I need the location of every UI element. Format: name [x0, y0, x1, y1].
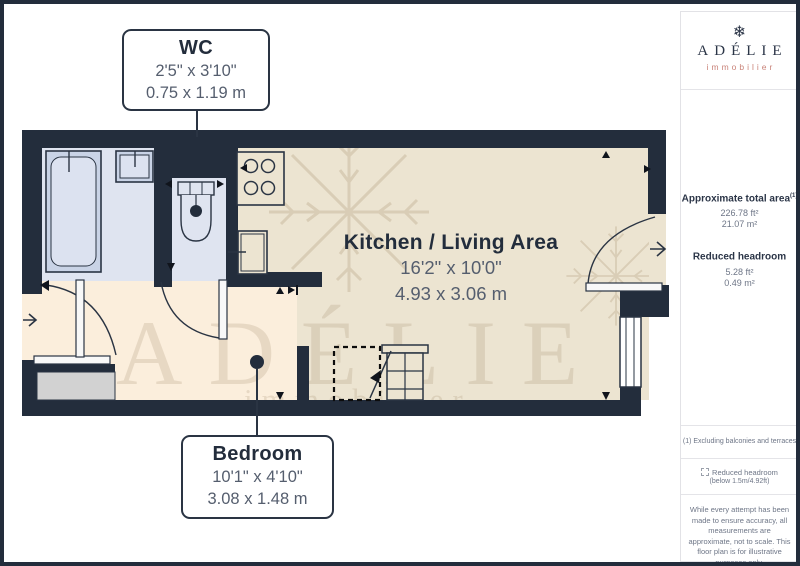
wall-left-upper — [22, 130, 42, 294]
wc-label-callout: WC 2'5" x 3'10" 0.75 x 1.19 m — [122, 29, 270, 111]
disclaimer-section: While every attempt has been made to ens… — [681, 494, 798, 561]
footnote-section: (1) Excluding balconies and terraces — [681, 425, 798, 458]
wall-top — [22, 130, 666, 148]
divider — [681, 89, 798, 90]
area-stats: Approximate total area(1) 226.78 ft² 21.… — [681, 193, 798, 289]
stat-value: 226.78 ft² — [681, 208, 798, 219]
bathroom-sink — [116, 151, 153, 182]
door-leaf-bathroom — [76, 280, 84, 357]
floorplan-page: ADÉLIE immobilier — [0, 0, 800, 566]
brand-tagline: immobilier — [681, 62, 798, 72]
legend-section: Reduced headroom (below 1.5m/4.92ft) — [681, 458, 798, 494]
brand-name: ADÉLIE — [681, 43, 798, 60]
wall-bedroom-living — [297, 346, 309, 400]
snowflake-icon: ❄ — [681, 22, 798, 41]
wc-label-connector — [196, 109, 198, 137]
stat-label-reduced-headroom: Reduced headroom — [681, 251, 798, 262]
wc-room-name: WC — [124, 37, 268, 60]
bedroom-imperial-dims: 10'1" x 4'10" — [183, 466, 332, 488]
wc-metric-dims: 0.75 x 1.19 m — [124, 82, 268, 104]
bedroom-label-anchor-dot — [250, 355, 264, 369]
wall-below-window — [620, 387, 641, 400]
footnote-text: (1) Excluding balconies and terraces — [683, 438, 796, 445]
wall-closet-band — [37, 364, 115, 372]
kitchen-imperial-dims: 16'2" x 10'0" — [311, 255, 591, 281]
closet — [34, 356, 115, 400]
reduced-headroom-legend-icon — [701, 468, 709, 476]
bathtub — [46, 151, 101, 272]
door-leaf-living — [586, 283, 662, 291]
floor-entry-gap — [22, 294, 42, 360]
wall-wc-top — [172, 130, 226, 178]
stat-label-total-area: Approximate total area(1) — [681, 193, 798, 204]
kitchen-room-name: Kitchen / Living Area — [311, 231, 591, 255]
stat-value: 21.07 m² — [681, 219, 798, 230]
bedroom-label-callout: Bedroom 10'1" x 4'10" 3.08 x 1.48 m — [181, 435, 334, 519]
kitchen-metric-dims: 4.93 x 3.06 m — [311, 281, 591, 307]
wall-right-upper — [648, 130, 666, 214]
legend-sublabel: (below 1.5m/4.92ft) — [710, 478, 770, 485]
wc-imperial-dims: 2'5" x 3'10" — [124, 60, 268, 82]
info-sidebar: ❄ ADÉLIE immobilier Approximate total ar… — [680, 11, 799, 562]
stat-value: 0.49 m² — [681, 278, 798, 289]
disclaimer-text: While every attempt has been made to ens… — [688, 505, 791, 566]
legend-label: Reduced headroom — [712, 468, 778, 477]
wall-bottom — [22, 400, 641, 416]
brand-logo: ❄ ADÉLIE immobilier — [681, 12, 798, 72]
stove — [237, 152, 284, 205]
door-leaf-wc — [219, 280, 227, 339]
bedroom-label-connector — [256, 368, 258, 437]
stat-value: 5.28 ft² — [681, 267, 798, 278]
bedroom-metric-dims: 3.08 x 1.48 m — [183, 488, 332, 510]
bedroom-room-name: Bedroom — [183, 443, 332, 466]
kitchen-living-label: Kitchen / Living Area 16'2" x 10'0" 4.93… — [311, 231, 591, 307]
window — [620, 317, 641, 387]
toilet — [178, 182, 214, 241]
